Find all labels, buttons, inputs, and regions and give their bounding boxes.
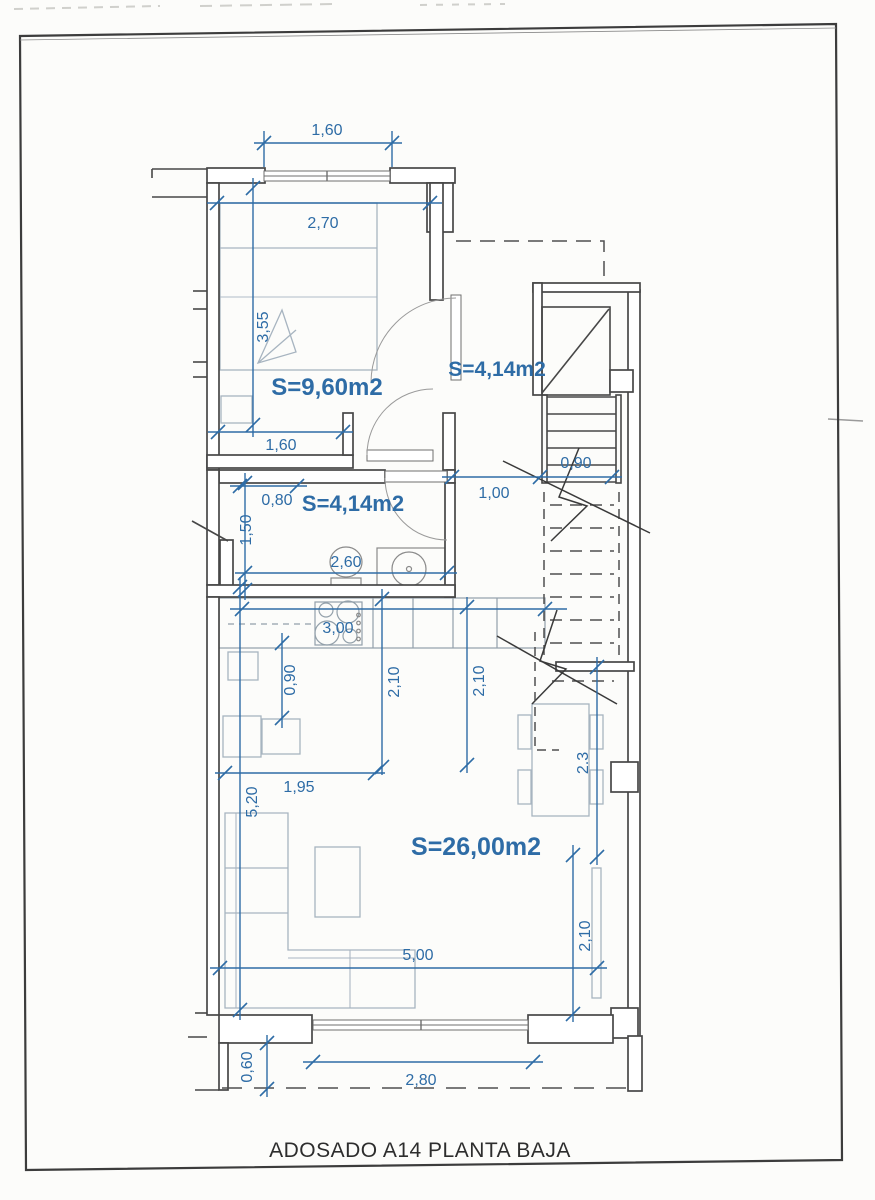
- side-table: [228, 652, 258, 680]
- stair-arrow: [532, 610, 566, 704]
- room-label-bedroom: S=9,60m2: [271, 374, 382, 401]
- dim-bath-left-height: 1,50: [238, 514, 255, 545]
- chair: [518, 770, 531, 804]
- dim-bedroom-width: 2,70: [307, 215, 338, 232]
- dim-right-window: 2,10: [577, 920, 594, 951]
- porch-outline: [456, 241, 604, 281]
- bedroom-window: [264, 171, 390, 181]
- corner-column: [611, 1008, 638, 1038]
- scanned-floor-plan-page: 1,60 2,70 3,55 1,60 0,80 1,50 2,60 1,00 …: [0, 0, 875, 1200]
- dim-dining-height: 2.3: [575, 752, 592, 774]
- dimension-labels: 1,60 2,70 3,55 1,60 0,80 1,50 2,60 1,00 …: [238, 122, 594, 1089]
- staircase: [497, 283, 650, 704]
- dim-stair-width: 0,90: [560, 455, 591, 472]
- right-pillar: [611, 762, 638, 792]
- plan-title: ADOSADO A14 PLANTA BAJA: [269, 1139, 571, 1162]
- dim-kitchen-depth: 0,90: [282, 664, 299, 695]
- dim-bedroom-door-wall: 1,60: [265, 437, 296, 454]
- dim-sofa-wall: 1,95: [283, 779, 314, 796]
- furniture-layer: [219, 203, 603, 1008]
- room-label-living: S=26,00m2: [411, 833, 541, 861]
- dim-kitchen-width: 3,00: [322, 620, 353, 637]
- coffee-table: [315, 847, 360, 917]
- armchair: [262, 719, 300, 754]
- armchair: [223, 716, 261, 757]
- chair: [518, 715, 531, 749]
- washbasin: [392, 552, 426, 586]
- dim-kitchen-h2: 2,10: [471, 665, 488, 696]
- room-label-bathroom: S=4,14m2: [302, 491, 404, 516]
- dim-bath-width: 2,60: [330, 554, 361, 571]
- dim-living-height: 5,20: [244, 786, 261, 817]
- dim-terrace-window: 2,80: [405, 1072, 436, 1089]
- dim-living-width: 5,00: [402, 947, 433, 964]
- dim-kitchen-h1: 2,10: [386, 666, 403, 697]
- terrace-window: [313, 1020, 528, 1030]
- dim-entry-width: 1,00: [478, 485, 509, 502]
- dim-bath-shelf: 0,80: [261, 492, 292, 509]
- bath-pilaster: [220, 540, 233, 588]
- sofa: [225, 813, 415, 1008]
- dim-terrace-depth: 0,60: [239, 1051, 256, 1082]
- floor-plan-drawing: 1,60 2,70 3,55 1,60 0,80 1,50 2,60 1,00 …: [0, 0, 875, 1200]
- nightstand: [221, 396, 252, 423]
- dim-bedroom-height: 3,55: [255, 311, 272, 342]
- room-label-hall: S=4,14m2: [448, 358, 546, 381]
- dim-top-window: 1,60: [311, 122, 342, 139]
